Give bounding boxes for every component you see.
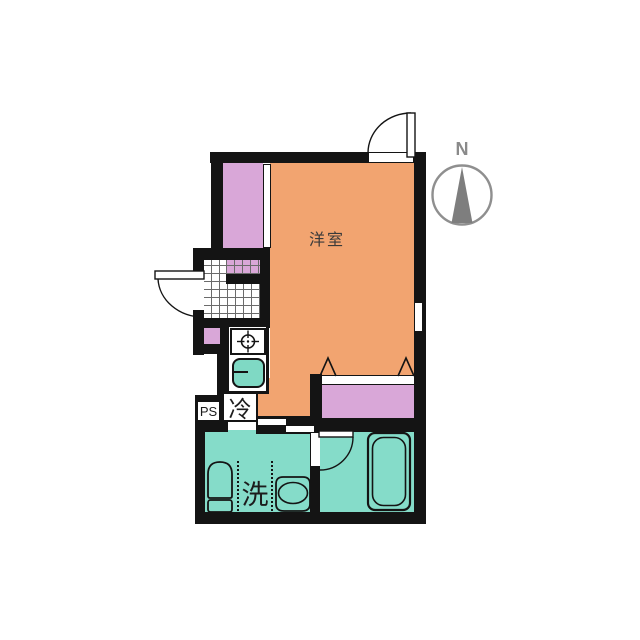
closet-upper-door [263,164,271,248]
compass-icon [430,163,495,228]
folding-door-icon [316,356,418,377]
basin-icon [273,474,313,514]
wall-under-shoe-cabinet [226,274,260,284]
sliding-door-panel-1 [257,418,287,426]
entrance-door-icon [150,265,208,320]
closet-upper-floor [223,163,263,248]
wall-left-upper [211,152,223,260]
compass-north-label: N [450,140,474,158]
wall-entrance-right [260,248,270,328]
main-door-icon [360,108,420,164]
laundry-label: 洗 [239,477,271,507]
toilet-icon [205,460,236,514]
wall-washroom-left [195,428,205,518]
main-room-label: 洋室 [294,228,360,248]
bathroom-door-icon [315,428,360,474]
wall-right [414,152,426,524]
refrigerator-label: 冷 [222,392,258,422]
utility-pink-square [202,328,220,344]
closet-lower-floor [322,384,414,420]
sink-faucet [232,371,248,373]
pipe-space-label: PS [196,400,221,422]
wall-under-closet [193,248,270,260]
sliding-door-panel-2 [285,425,315,433]
bathtub-icon [366,431,413,512]
window-slot [415,302,422,332]
main-room-floor [270,163,414,378]
stove-icon [234,329,262,354]
kitchen-sink-icon [232,358,265,388]
floor-plan-canvas: 冷 PS 洗 N 洋室 [0,0,640,640]
